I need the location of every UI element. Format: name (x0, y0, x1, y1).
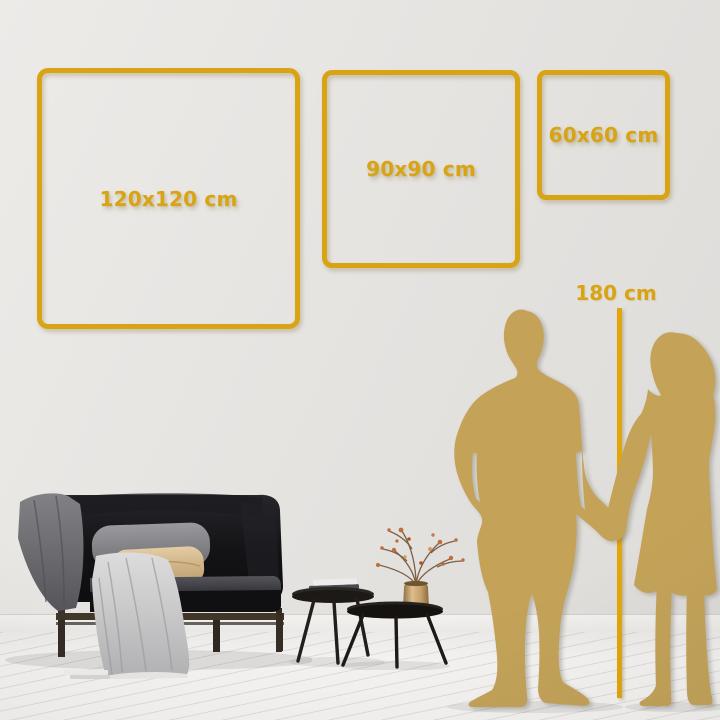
right-coffee-table (343, 602, 446, 668)
size-label-90: 90x90 cm (366, 157, 476, 181)
size-frame-90: 90x90 cm (322, 70, 520, 268)
height-marker-label: 180 cm (560, 281, 672, 305)
size-frame-60: 60x60 cm (537, 70, 670, 200)
woman-silhouette (640, 581, 672, 706)
dark-gray-blanket (18, 493, 83, 611)
size-label-60: 60x60 cm (549, 123, 659, 147)
size-label-120: 120x120 cm (99, 187, 237, 211)
size-frame-120: 120x120 cm (37, 68, 300, 329)
size-comparison-scene: 120x120 cm 90x90 cm 60x60 cm 180 cm (0, 0, 720, 720)
man-silhouette (454, 309, 620, 707)
couple-silhouettes (435, 303, 720, 713)
sofa-illustration (0, 478, 312, 683)
floor-books (64, 670, 108, 675)
